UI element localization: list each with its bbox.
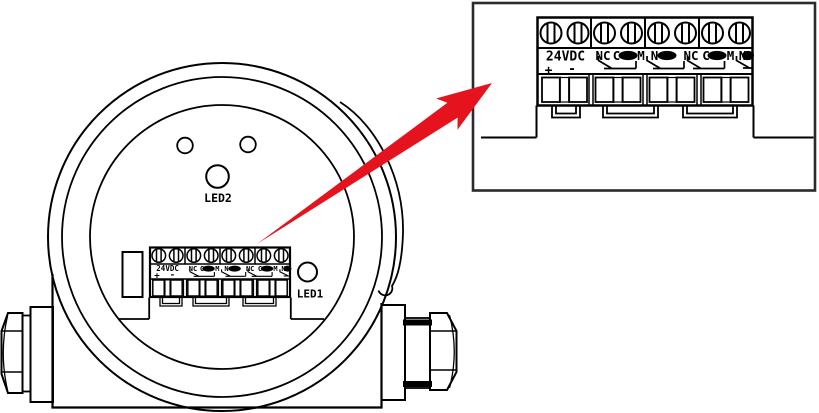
contact-label-com1-m: M — [637, 48, 645, 63]
left-hex-nut — [2, 313, 23, 393]
terminal-screw — [169, 249, 183, 263]
seal-band-bottom — [403, 381, 432, 387]
contact-label-nc2: NC — [683, 48, 698, 63]
mounting-hole-left — [177, 138, 193, 154]
seal-band-top — [403, 320, 432, 326]
terminal-screw — [239, 249, 253, 263]
left-collar — [23, 316, 31, 392]
com1-oval — [619, 51, 638, 60]
cover-outer-circle — [48, 63, 396, 411]
right-hex-nut — [430, 313, 457, 390]
cover-inner-face-circle — [90, 105, 354, 369]
terminal-screw — [152, 249, 166, 263]
terminal-screw — [222, 249, 236, 263]
clamp-windows-front — [153, 279, 287, 297]
conduit-fitting-right — [382, 305, 457, 400]
component-slot — [123, 252, 143, 297]
mounting-hole-right — [240, 137, 256, 153]
wiring-diagram-page: LED2 LED1 24VDC — [0, 0, 819, 413]
right-flange — [382, 305, 406, 400]
terminal-screw — [204, 249, 218, 263]
cover-middle-circle — [62, 77, 382, 397]
contact-label-nc2: NC — [246, 265, 254, 273]
no1-oval — [658, 51, 677, 60]
no1-oval — [228, 266, 240, 272]
no2-oval — [284, 266, 292, 272]
com1-oval — [202, 266, 214, 272]
no2-oval — [742, 51, 754, 60]
minus-label: - — [170, 271, 175, 281]
terminal-screw — [257, 249, 271, 263]
led2-label: LED2 — [204, 191, 232, 205]
led2-indicator — [206, 165, 229, 188]
conduit-fitting-left — [2, 307, 54, 402]
com2-oval — [708, 51, 727, 60]
led1-indicator — [298, 263, 317, 282]
device-wiring-diagram: LED2 LED1 24VDC — [0, 0, 819, 413]
com2-oval — [261, 266, 273, 272]
contact-label-com2-m: M — [273, 265, 277, 273]
zoom-callout-arrow — [257, 83, 492, 244]
terminal-screw — [274, 249, 288, 263]
terminal-block-front: 24VDC + - NC C M N NC C M N — [119, 248, 325, 320]
mounting-brackets-front — [160, 298, 276, 307]
minus-label: - — [568, 62, 576, 77]
detail-callout-view: 24VDC + - NC C M N NC C M N — [473, 3, 815, 191]
right-pipe — [405, 318, 430, 388]
contact-label-no1-n: N — [224, 265, 228, 273]
device-front-view: LED2 LED1 24VDC — [2, 63, 457, 411]
plus-label: + — [545, 64, 553, 79]
contact-label-no1-n: N — [651, 48, 659, 63]
power-label: 24VDC — [546, 50, 585, 65]
left-flange — [31, 307, 54, 402]
contact-label-com2-m: M — [727, 48, 735, 63]
terminal-screw — [187, 249, 201, 263]
platform-step-front — [119, 298, 325, 320]
contact-label-com1-m: M — [215, 265, 219, 273]
led1-label: LED1 — [297, 288, 324, 301]
